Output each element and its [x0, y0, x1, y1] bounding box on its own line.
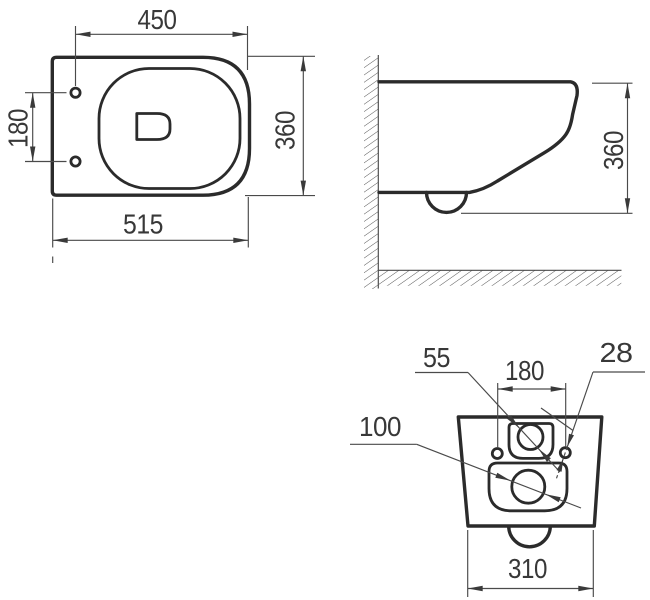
outlet-bump-rear	[509, 526, 551, 547]
dim-label-fixing-hole-diameter: 28	[600, 337, 633, 368]
dim-arrow	[30, 93, 35, 108]
dim-arrow	[301, 56, 306, 71]
dimension-515: 515	[53, 197, 249, 263]
dim-label-inlet-diameter: 55	[423, 342, 450, 373]
dim-arrow	[625, 198, 630, 213]
bowl-profile-side	[379, 82, 577, 193]
dim-arrow	[76, 32, 91, 37]
dim-arrow	[301, 181, 306, 196]
dim-label-height-side: 360	[598, 131, 629, 170]
dim-label-depth-plan: 360	[270, 111, 301, 150]
top-view: 450 180 360 515	[3, 4, 316, 263]
outlet-bump-side	[427, 192, 467, 212]
dim-label-hole-spacing-plan: 180	[3, 109, 34, 148]
dim-arrow	[498, 386, 513, 391]
technical-drawing-canvas: 450 180 360 515	[0, 0, 650, 600]
dim-label-hole-spacing-rear: 180	[505, 355, 544, 386]
dim-arrow	[578, 586, 593, 591]
dim-arrow	[233, 238, 248, 243]
dim-arrow	[551, 386, 566, 391]
dim-arrow	[53, 238, 68, 243]
dim-arrow	[233, 32, 248, 37]
toilet-dimension-drawing: 450 180 360 515	[0, 0, 650, 600]
dim-label-top-width: 450	[138, 4, 177, 35]
dimension-310: 310	[468, 530, 594, 597]
dim-label-outlet-diameter: 100	[359, 411, 401, 442]
dimension-360-plan: 360	[245, 56, 315, 195]
side-view: 360	[364, 55, 633, 289]
dimension-360-side: 360	[461, 83, 633, 213]
wall-hatching	[364, 56, 378, 289]
rear-view: 180 55 28 100	[350, 337, 645, 597]
floor-hatching	[378, 270, 621, 286]
dim-label-total-length: 515	[123, 209, 163, 240]
dim-arrow	[468, 586, 483, 591]
dim-arrow	[625, 83, 630, 98]
dim-label-rear-width: 310	[508, 553, 547, 584]
